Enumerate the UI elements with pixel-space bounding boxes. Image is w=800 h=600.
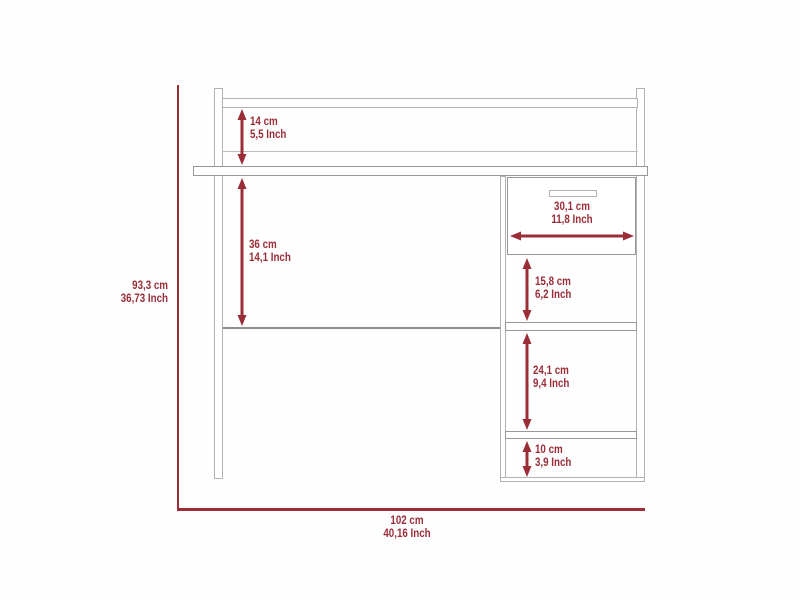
hutch-lower-rail bbox=[222, 151, 638, 152]
desk-left-leg bbox=[214, 88, 223, 479]
overall-height-extension-line bbox=[177, 85, 179, 511]
dimension-diagram: 14 cm 5,5 Inch 36 cm 14,1 Inch 30,1 cm 1… bbox=[0, 0, 800, 600]
dim-label-overall-width: 102 cm 40,16 Inch bbox=[339, 515, 475, 541]
dim-value-cm: 15,8 cm bbox=[535, 276, 571, 289]
desk-right-panel bbox=[636, 88, 645, 481]
overall-width-extension-line bbox=[177, 508, 645, 511]
dim-label-desk-clearance: 36 cm 14,1 Inch bbox=[249, 239, 291, 265]
dim-label-overall-height: 93,3 cm 36,73 Inch bbox=[76, 280, 168, 306]
hutch-top-shelf bbox=[222, 98, 638, 108]
dim-value-cm: 24,1 cm bbox=[533, 365, 569, 378]
desk-crossbar bbox=[223, 327, 504, 329]
dim-value-cm: 30,1 cm bbox=[521, 201, 623, 214]
desk-clearance-arrow bbox=[238, 178, 247, 326]
dim-value-inch: 36,73 Inch bbox=[76, 293, 168, 306]
hutch-clearance-arrow bbox=[238, 109, 247, 165]
dim-value-inch: 5,5 Inch bbox=[250, 129, 286, 142]
dim-value-inch: 14,1 Inch bbox=[249, 252, 291, 265]
dim-label-hutch-clearance: 14 cm 5,5 Inch bbox=[250, 116, 286, 142]
dim-value-cm: 93,3 cm bbox=[76, 280, 168, 293]
dim-label-middle-compartment: 24,1 cm 9,4 Inch bbox=[533, 365, 569, 391]
dim-value-cm: 102 cm bbox=[339, 515, 475, 528]
dim-value-inch: 40,16 Inch bbox=[339, 528, 475, 541]
drawer-handle bbox=[549, 190, 597, 197]
dim-label-lower-compartment: 10 cm 3,9 Inch bbox=[535, 444, 571, 470]
lower-compartment-arrow bbox=[523, 441, 532, 477]
middle-compartment-arrow bbox=[523, 333, 532, 430]
dim-label-upper-compartment: 15,8 cm 6,2 Inch bbox=[535, 276, 571, 302]
cabinet-shelf-upper bbox=[505, 322, 637, 331]
dim-value-cm: 36 cm bbox=[249, 239, 291, 252]
dim-label-drawer-width: 30,1 cm 11,8 Inch bbox=[521, 201, 623, 227]
desktop-surface bbox=[193, 166, 648, 176]
cabinet-shelf-lower bbox=[505, 431, 637, 439]
dim-value-inch: 11,8 Inch bbox=[521, 214, 623, 227]
dim-value-cm: 14 cm bbox=[250, 116, 286, 129]
dim-value-inch: 3,9 Inch bbox=[535, 457, 571, 470]
dim-value-inch: 6,2 Inch bbox=[535, 289, 571, 302]
dim-value-cm: 10 cm bbox=[535, 444, 571, 457]
upper-compartment-arrow bbox=[523, 258, 532, 321]
dim-value-inch: 9,4 Inch bbox=[533, 378, 569, 391]
cabinet-bottom bbox=[500, 477, 645, 482]
